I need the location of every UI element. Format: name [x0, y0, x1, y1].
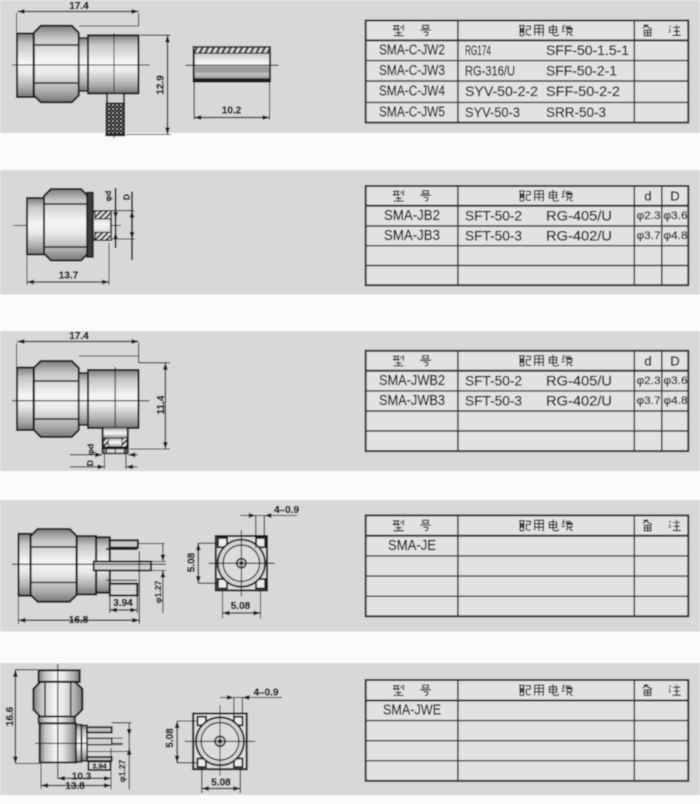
svg-text:RG-402/U: RG-402/U [546, 393, 612, 408]
svg-text:17.4: 17.4 [69, 1, 89, 12]
svg-text:SYV-50-3: SYV-50-3 [465, 105, 520, 120]
svg-text:5.08: 5.08 [187, 552, 198, 572]
svg-text:SMA-JB3: SMA-JB3 [384, 228, 440, 244]
svg-text:11.4: 11.4 [156, 395, 167, 414]
svg-text:RG-405/U: RG-405/U [546, 208, 612, 223]
svg-text:17.4: 17.4 [69, 331, 89, 342]
svg-text:SFF-50-2-1: SFF-50-2-1 [546, 63, 617, 78]
svg-text:10.2: 10.2 [222, 106, 242, 117]
svg-text:d: d [644, 188, 651, 203]
svg-text:SRR-50-3: SRR-50-3 [546, 105, 606, 120]
svg-text:RG174: RG174 [465, 43, 491, 58]
svg-text:SMA-C-JW2: SMA-C-JW2 [379, 43, 445, 59]
svg-text:4–0.9: 4–0.9 [253, 688, 278, 699]
svg-text:φ4.8: φ4.8 [664, 230, 688, 242]
svg-text:4–0.9: 4–0.9 [274, 505, 299, 516]
svg-text:SMA-C-JW3: SMA-C-JW3 [379, 63, 445, 79]
svg-text:RG-402/U: RG-402/U [546, 228, 612, 243]
svg-text:d: d [644, 353, 651, 368]
svg-text:SMA-JWB2: SMA-JWB2 [379, 373, 445, 389]
svg-text:16.6: 16.6 [5, 706, 16, 726]
svg-text:5.08: 5.08 [211, 778, 231, 789]
svg-text:13.8: 13.8 [65, 781, 85, 792]
svg-text:SYV-50-2-2: SYV-50-2-2 [465, 84, 538, 99]
svg-text:φ1.27: φ1.27 [117, 759, 127, 782]
svg-text:SFF-50-2-2: SFF-50-2-2 [546, 84, 620, 99]
svg-text:SMA-C-JW4: SMA-C-JW4 [379, 84, 445, 100]
svg-text:D: D [122, 194, 132, 200]
svg-text:SFT-50-3: SFT-50-3 [465, 393, 522, 408]
svg-text:RG-405/U: RG-405/U [546, 373, 612, 388]
svg-text:RG-316/U: RG-316/U [465, 63, 515, 78]
svg-text:SMA-C-JW5: SMA-C-JW5 [379, 105, 445, 121]
svg-text:5.08: 5.08 [231, 601, 251, 612]
svg-text:φ2.3: φ2.3 [637, 210, 661, 222]
svg-text:3.94: 3.94 [113, 598, 133, 609]
svg-text:φ2.3: φ2.3 [637, 375, 661, 387]
svg-text:φ3.6: φ3.6 [664, 375, 688, 387]
svg-text:SFT-50-3: SFT-50-3 [465, 228, 522, 243]
svg-text:SMA-JWE: SMA-JWE [383, 703, 441, 719]
svg-text:16.8: 16.8 [69, 615, 89, 626]
svg-text:φ3.7: φ3.7 [637, 395, 661, 407]
svg-text:SFF-50-1.5-1: SFF-50-1.5-1 [546, 43, 629, 58]
svg-text:3.94: 3.94 [92, 761, 107, 770]
svg-text:φ1.27: φ1.27 [153, 580, 163, 603]
svg-text:φ3.7: φ3.7 [637, 230, 661, 242]
svg-text:φd: φd [104, 191, 113, 202]
svg-text:SFT-50-2: SFT-50-2 [465, 373, 522, 388]
svg-text:D: D [670, 353, 679, 368]
svg-text:D: D [670, 188, 679, 203]
svg-text:SMA-JB2: SMA-JB2 [384, 208, 440, 224]
svg-text:φ3.6: φ3.6 [664, 210, 688, 222]
svg-text:SMA-JE: SMA-JE [388, 538, 436, 554]
svg-text:13.7: 13.7 [59, 271, 79, 282]
svg-text:5.08: 5.08 [165, 728, 176, 748]
svg-text:SMA-JWB3: SMA-JWB3 [379, 393, 445, 409]
svg-text:SFT-50-2: SFT-50-2 [465, 208, 522, 223]
svg-text:φd: φd [86, 444, 96, 455]
svg-text:φ4.8: φ4.8 [664, 395, 688, 407]
svg-text:12.9: 12.9 [156, 75, 167, 95]
svg-text:D: D [85, 460, 95, 466]
